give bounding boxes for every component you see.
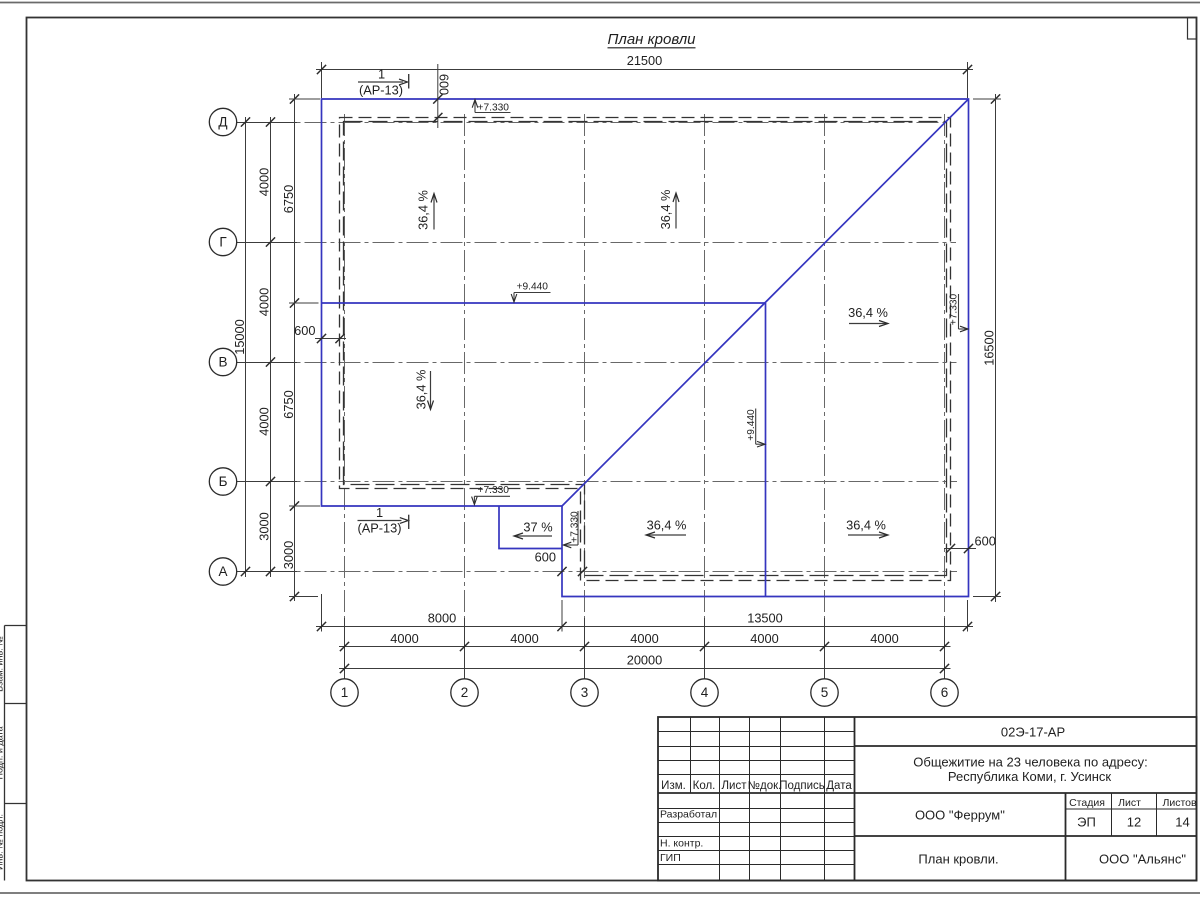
svg-text:6: 6 [941, 685, 949, 700]
svg-text:14: 14 [1175, 815, 1189, 830]
svg-text:12: 12 [1127, 815, 1141, 830]
svg-text:6750: 6750 [281, 390, 296, 418]
svg-text:Стадия: Стадия [1069, 797, 1105, 809]
svg-text:Изм.: Изм. [661, 780, 686, 792]
svg-text:37 %: 37 % [523, 520, 552, 535]
svg-text:+7.330: +7.330 [478, 103, 510, 114]
svg-text:Общежитие на 23 человека по ад: Общежитие на 23 человека по адресу: [913, 755, 1147, 770]
svg-text:Б: Б [219, 474, 228, 489]
svg-text:16500: 16500 [981, 330, 996, 366]
svg-text:3000: 3000 [257, 512, 272, 540]
svg-text:Дата: Дата [826, 780, 852, 792]
svg-text:(АР-13): (АР-13) [357, 521, 401, 536]
svg-text:36,4 %: 36,4 % [848, 305, 888, 320]
svg-text:36,4 %: 36,4 % [846, 518, 886, 533]
svg-text:План кровли.: План кровли. [918, 852, 998, 867]
svg-text:2: 2 [461, 685, 469, 700]
svg-text:Г: Г [219, 235, 227, 250]
svg-text:Республика Коми, г. Усинск: Республика Коми, г. Усинск [948, 769, 1111, 784]
svg-text:4000: 4000 [510, 631, 538, 646]
svg-text:13500: 13500 [747, 611, 783, 626]
svg-text:Взам. инв. №: Взам. инв. № [0, 636, 5, 692]
svg-text:15000: 15000 [232, 319, 247, 355]
svg-text:№док.: №док. [748, 780, 782, 792]
svg-text:36,4 %: 36,4 % [658, 190, 673, 230]
svg-text:20000: 20000 [627, 653, 663, 668]
svg-text:ООО "Альянс": ООО "Альянс" [1099, 852, 1186, 867]
svg-text:Инв. № подл.: Инв. № подл. [0, 814, 5, 870]
svg-text:36,4 %: 36,4 % [415, 190, 430, 230]
svg-text:1: 1 [378, 67, 385, 82]
svg-text:5: 5 [821, 685, 829, 700]
svg-text:1: 1 [376, 505, 383, 520]
svg-text:3: 3 [581, 685, 589, 700]
svg-text:ГИП: ГИП [660, 852, 681, 864]
svg-text:36,4 %: 36,4 % [647, 518, 687, 533]
svg-text:+9.440: +9.440 [517, 281, 549, 292]
svg-text:02Э-17-АР: 02Э-17-АР [1001, 725, 1065, 740]
svg-text:Лист: Лист [722, 780, 748, 792]
svg-text:Кол.: Кол. [693, 780, 716, 792]
svg-text:Д: Д [218, 115, 227, 130]
svg-text:Листов: Листов [1162, 797, 1197, 809]
svg-text:+9.440: +9.440 [746, 409, 757, 441]
svg-text:План кровли: План кровли [608, 31, 697, 48]
svg-text:3000: 3000 [281, 541, 296, 569]
svg-text:Подпись: Подпись [779, 780, 825, 792]
svg-text:4000: 4000 [257, 288, 272, 316]
svg-text:+7.330: +7.330 [478, 485, 510, 496]
svg-text:Лист: Лист [1118, 797, 1141, 809]
svg-text:ЭП: ЭП [1077, 815, 1096, 830]
svg-text:Подп. и дата: Подп. и дата [0, 726, 5, 779]
svg-text:Разработал: Разработал [660, 809, 717, 821]
svg-text:А: А [218, 564, 227, 579]
svg-text:600: 600 [975, 534, 996, 549]
svg-text:Н. контр.: Н. контр. [660, 838, 703, 850]
svg-text:600: 600 [436, 74, 451, 95]
svg-text:8000: 8000 [428, 611, 456, 626]
svg-text:4: 4 [701, 685, 709, 700]
svg-text:+7.330: +7.330 [569, 511, 580, 543]
svg-text:4000: 4000 [630, 631, 658, 646]
svg-text:1: 1 [341, 685, 349, 700]
svg-text:36,4 %: 36,4 % [413, 370, 428, 410]
svg-text:4000: 4000 [750, 631, 778, 646]
svg-text:4000: 4000 [257, 168, 272, 196]
svg-text:600: 600 [294, 323, 315, 338]
svg-text:В: В [218, 355, 227, 370]
svg-text:(АР-13): (АР-13) [359, 83, 403, 98]
svg-text:4000: 4000 [870, 631, 898, 646]
svg-text:+7.330: +7.330 [949, 293, 960, 325]
svg-text:ООО "Феррум": ООО "Феррум" [915, 808, 1005, 823]
svg-text:21500: 21500 [627, 53, 663, 68]
svg-text:6750: 6750 [281, 185, 296, 213]
svg-text:600: 600 [535, 550, 556, 565]
svg-text:4000: 4000 [257, 407, 272, 435]
svg-text:4000: 4000 [390, 631, 418, 646]
